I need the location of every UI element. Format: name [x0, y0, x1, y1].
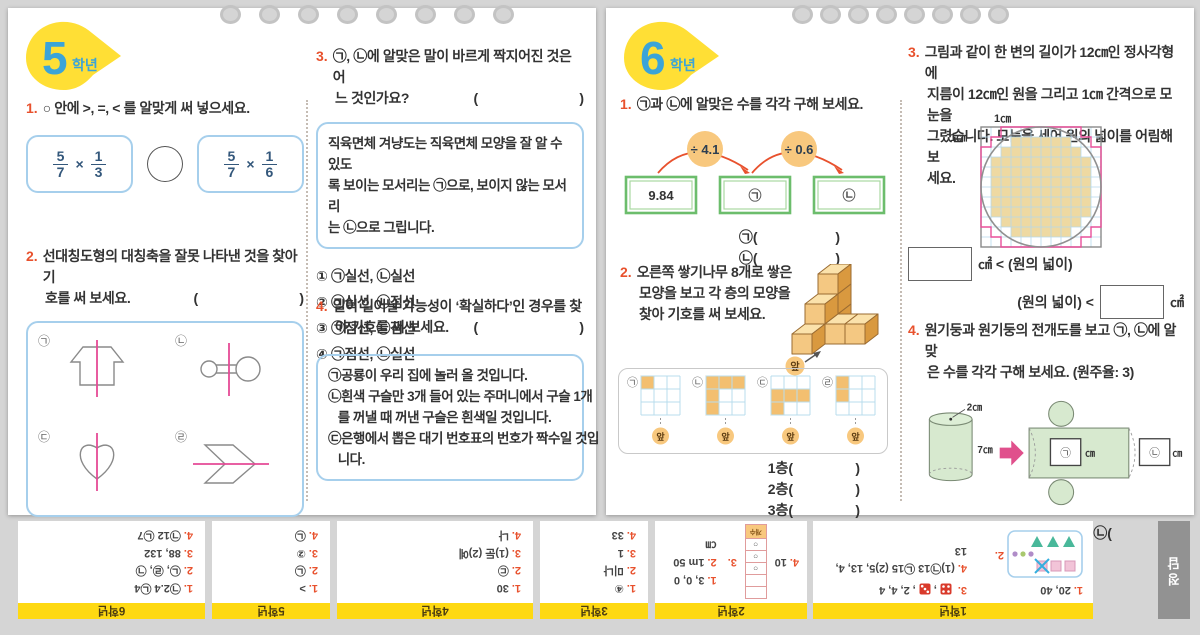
table-cell	[746, 586, 766, 598]
g6-question-4: 4. 원기둥과 원기둥의 전개도를 보고 ㉠, ㉡에 알맞 은 수를 각각 구해…	[908, 320, 1184, 544]
grid-label: ㉠	[627, 376, 638, 389]
die-icon	[919, 583, 931, 595]
unit-label: ㎝	[1172, 449, 1182, 460]
binder-ring-icon	[932, 5, 953, 24]
question-text: ㉠과 ㉡에 알맞은 수를 각각 구해 보세요.	[637, 94, 863, 115]
statement: 니다.	[328, 449, 572, 470]
binder-ring-icon	[220, 5, 241, 24]
statement: ㉠공룡이 우리 집에 놀러 올 것입니다.	[328, 365, 572, 386]
answer-mini-table: ○○○개수	[745, 524, 767, 599]
g5-q4-choices-box: ㉠공룡이 우리 집에 놀러 올 것입니다. ㉡흰색 구슬만 3개 들어 있는 주…	[316, 354, 584, 481]
answer-section-grade3: 3학년 1.④ 2.미나 3.1 4.33	[540, 521, 648, 619]
grade-tab: 3학년	[540, 603, 648, 619]
answer-section-grade5: 5학년 1.> 2.㉡ 3.② 4.㉡	[212, 521, 330, 619]
cube-stack-figure: 앞	[778, 264, 896, 378]
denominator: 3	[95, 164, 103, 180]
question-number: 4.	[908, 320, 920, 362]
question-text: 느 것인가요?	[335, 88, 409, 109]
answer-blank-layer3: 3층( )	[750, 500, 860, 521]
svg-text:앞: 앞	[656, 431, 665, 442]
circle-grid-figure	[980, 126, 1102, 248]
answer-box-b-label: ㉡	[1149, 448, 1160, 460]
column-divider	[900, 100, 902, 501]
answer-lines: 1.㉠2.4 ㉡4 2.㉡, ㉣, ㉠ 3.88, 132 4.㉠12 ㉡7	[18, 521, 205, 603]
table-cell	[746, 574, 766, 586]
fraction-box-left: 57 × 13	[26, 135, 133, 193]
binder-ring-icon	[415, 5, 436, 24]
binder-ring-icon	[792, 5, 813, 24]
statement: ㉡흰색 구슬만 3개 들어 있는 주머니에서 구슬 1개	[328, 386, 572, 407]
dumbbell-shape-figure	[195, 339, 269, 399]
question-text: 호를 써 보세요.	[45, 288, 130, 309]
binder-ring-icon	[376, 5, 397, 24]
answer-section-grade1: 1학년 1.20, 40	[813, 521, 1093, 619]
shape-cell-c: ㉢	[28, 419, 165, 515]
denominator: 7	[57, 164, 65, 180]
question-number: 3.	[316, 46, 328, 88]
grade-badge: 6 학년	[620, 18, 726, 96]
shape-cell-a: ㉠	[28, 323, 165, 419]
numerator: 1	[262, 149, 278, 165]
question-text: 선대칭도형의 대칭축을 잘못 나타낸 것을 찾아 기	[43, 246, 304, 288]
question-number: 2.	[620, 262, 632, 283]
binder-ring-icon	[960, 5, 981, 24]
question-text: 모양을 보고 각 층의 모양을	[639, 283, 790, 304]
answer-blank: ( )	[194, 288, 304, 309]
answer-blank-layer1: 1층( )	[750, 458, 860, 479]
heart-shape-figure	[60, 431, 134, 493]
fraction-box-right: 57 × 16	[197, 135, 304, 193]
svg-text:앞: 앞	[721, 431, 730, 442]
answer-section-grade2: 2학년 4.10 ○○○개수 3. 1.3, 0, 0 2.1m 50㎝	[655, 521, 807, 619]
binder-ring-icon	[259, 5, 280, 24]
compare-text-lower: ㎠ < (원의 넓이)	[978, 254, 1073, 275]
table-cell: ○	[746, 538, 766, 550]
unit-label: ㎝	[1085, 449, 1095, 460]
g5-q3-hint-box: 직육면체 겨냥도는 직육면체 모양을 잘 알 수 있도 록 보이는 모서리는 ㉠…	[316, 122, 584, 249]
g5-question-1: 1. ○ 안에 >, =, < 를 알맞게 써 넣으세요. 57 × 13 57…	[26, 98, 304, 193]
layer-options-box: ㉠ 앞 ㉡ 앞 ㉢	[618, 368, 888, 454]
numerator: 5	[53, 149, 69, 165]
cylinder-net-figure: 2㎝ 7㎝ ㉠ ㎝ ㉡ ㎝	[908, 391, 1184, 515]
shape-label: ㉡	[175, 331, 187, 352]
hint-text: 직육면체 겨냥도는 직육면체 모양을 잘 알 수 있도	[328, 133, 572, 175]
shape-cell-d: ㉣	[165, 419, 302, 515]
table-cell: ○	[746, 562, 766, 574]
grade-tab: 6학년	[18, 603, 205, 619]
question-text: 일이 일어날 가능성이 ‘확실하다’인 경우를 찾	[333, 296, 582, 317]
grid-label: ㉡	[692, 376, 703, 389]
arrow-shape-figure	[60, 339, 134, 399]
answer-lines: 1.30 2.㉢ 3.(1)둔 (2)예 4.나	[337, 521, 533, 603]
answers-tab-label: 정답	[1165, 554, 1184, 586]
binder-ring-icon	[988, 5, 1009, 24]
hint-text: 록 보이는 모서리는 ㉠으로, 보이지 않는 모서리	[328, 175, 572, 217]
operator-label: ÷ 0.6	[785, 142, 814, 157]
table-cell: ○	[746, 550, 766, 562]
binder-ring-icon	[876, 5, 897, 24]
times-sign: ×	[75, 154, 83, 175]
g6-question-1: 1. ㉠과 ㉡에 알맞은 수를 각각 구해 보세요. ÷ 4.1 ÷ 0.6 9…	[620, 94, 896, 269]
denominator: 7	[228, 164, 236, 180]
denominator: 6	[266, 164, 274, 180]
height-label: 7㎝	[977, 445, 992, 456]
question-number: 3.	[908, 42, 920, 84]
binder-ring-icon	[493, 5, 514, 24]
times-sign: ×	[246, 154, 254, 175]
question-text: 원기둥과 원기둥의 전개도를 보고 ㉠, ㉡에 알맞	[925, 320, 1184, 362]
grade-suffix: 학년	[72, 57, 98, 73]
layer-grids-figure: ㉠ 앞 ㉡ 앞 ㉢	[621, 370, 883, 450]
answer-input-box	[908, 247, 972, 281]
binder-ring-icon	[904, 5, 925, 24]
binder-ring-icon	[454, 5, 475, 24]
svg-text:앞: 앞	[786, 431, 795, 442]
grade-tab: 1학년	[813, 603, 1093, 619]
cm-label-left: 1㎝	[950, 128, 967, 149]
hint-text: 는 ㉡으로 그립니다.	[328, 217, 572, 238]
compare-text-upper: (원의 넓이) <	[1017, 292, 1094, 313]
shape-label: ㉠	[38, 331, 50, 352]
question-number: 1.	[620, 94, 632, 115]
question-number: 4.	[316, 296, 328, 317]
binder-ring-icon	[848, 5, 869, 24]
answer-lines: 1.> 2.㉡ 3.② 4.㉡	[212, 521, 330, 603]
binder-ring-icon	[820, 5, 841, 24]
grid-label: ㉢	[757, 376, 768, 389]
page-grade5: 5 학년 1. ○ 안에 >, =, < 를 알맞게 써 넣으세요. 57 × …	[8, 8, 596, 515]
mid-placeholder: ㉠	[748, 188, 761, 203]
operator-label: ÷ 4.1	[691, 142, 720, 157]
transform-arrow-icon	[1000, 441, 1024, 466]
answer-blank-layer2: 2층( )	[750, 479, 860, 500]
grade-tab: 5학년	[212, 603, 330, 619]
statement: 를 꺼낼 때 꺼낸 구슬은 흰색일 것입니다.	[328, 407, 572, 428]
question-text: 그림과 같이 한 변의 길이가 12㎝인 정사각형에	[925, 42, 1184, 84]
table-header: 개수	[746, 525, 766, 538]
g6-question-3: 3. 그림과 같이 한 변의 길이가 12㎝인 정사각형에 지름이 12㎝인 원…	[908, 42, 1184, 322]
shape-label: ㉢	[38, 427, 50, 448]
answer-blank: ㉠( )	[620, 227, 840, 248]
question-text: 찾아 기호를 써 보세요.	[639, 304, 765, 325]
g5-question-4: 4. 일이 일어날 가능성이 ‘확실하다’인 경우를 찾 아 기호를 써 보세요…	[316, 296, 584, 481]
answer-blank: ( )	[474, 88, 584, 109]
start-value: 9.84	[648, 188, 674, 203]
g6-question-2: 2. 오른쪽 쌓기나무 8개로 쌓은 모양을 보고 각 층의 모양을 찾아 기호…	[620, 262, 896, 514]
question-text: 오른쪽 쌓기나무 8개로 쌓은	[637, 262, 792, 283]
question-text: ○ 안에 >, =, < 를 알맞게 써 넣으세요.	[43, 98, 250, 119]
net-top-circle	[1049, 401, 1074, 426]
svg-text:앞: 앞	[851, 431, 860, 442]
question-number: 2.	[26, 246, 38, 288]
chevron-shape-figure	[191, 435, 271, 493]
question-text: 지름이 12㎝인 원을 그리고 1㎝ 간격으로 모눈을	[927, 84, 1184, 126]
end-placeholder: ㉡	[842, 188, 855, 203]
grade-suffix: 학년	[670, 57, 696, 73]
division-chain-figure: ÷ 4.1 ÷ 0.6 9.84 ㉠ ㉡	[620, 121, 890, 221]
g5-question-2: 2. 선대칭도형의 대칭축을 잘못 나타낸 것을 찾아 기 호를 써 보세요. …	[26, 246, 304, 517]
net-bottom-circle	[1049, 480, 1074, 505]
g5-q1-figure: 57 × 13 57 × 16	[26, 135, 304, 193]
question-text: 은 수를 각각 구해 보세요. (원주율: 3)	[927, 362, 1134, 383]
grade-badge: 5 학년	[22, 18, 128, 96]
radius-label: 2㎝	[967, 402, 982, 413]
workbook-spread: 5 학년 1. ○ 안에 >, =, < 를 알맞게 써 넣으세요. 57 × …	[0, 0, 1200, 635]
grade-number: 6	[640, 32, 666, 84]
answers-side-tab: 정답	[1158, 521, 1190, 619]
shape-label: ㉣	[175, 427, 187, 448]
answer-input-box	[1100, 285, 1164, 319]
answer-lines: 1.④ 2.미나 3.1 4.33	[540, 521, 648, 603]
grade-number: 5	[42, 32, 68, 84]
shapes-figure	[1007, 531, 1083, 579]
answer-blank: ( )	[474, 317, 584, 338]
shape-cell-b: ㉡	[165, 323, 302, 419]
grid-label: ㉣	[822, 376, 833, 389]
statement: ㉢은행에서 뽑은 대기 번호표의 번호가 짝수일 것입	[328, 428, 572, 449]
answer-section-grade4: 4학년 1.30 2.㉢ 3.(1)둔 (2)예 4.나	[337, 521, 533, 619]
binder-ring-icon	[298, 5, 319, 24]
answer-box-a-label: ㉠	[1060, 448, 1071, 460]
grade-tab: 4학년	[337, 603, 533, 619]
question-text: 세요.	[927, 168, 955, 189]
grade-tab: 2학년	[655, 603, 807, 619]
question-text: ㉠, ㉡에 알맞은 말이 바르게 짝지어진 것은 어	[333, 46, 584, 88]
numerator: 1	[91, 149, 107, 165]
page-grade6: 6 학년 1. ㉠과 ㉡에 알맞은 수를 각각 구해 보세요. ÷ 4.1 ÷ …	[606, 8, 1194, 515]
question-number: 1.	[26, 98, 38, 119]
question-text: 아 기호를 써 보세요.	[335, 317, 449, 338]
answer-section-grade6: 6학년 1.㉠2.4 ㉡4 2.㉡, ㉣, ㉠ 3.88, 132 4.㉠12 …	[18, 521, 205, 619]
symmetry-figure-box: ㉠ ㉡ ㉢	[26, 321, 304, 517]
unit-label: ㎠	[1170, 292, 1184, 313]
comparison-answer-circle	[147, 146, 183, 182]
binder-ring-icon	[337, 5, 358, 24]
numerator: 5	[224, 149, 240, 165]
option-1: ① ㉠실선, ㉡실선	[316, 263, 584, 289]
column-divider	[306, 100, 308, 501]
die-icon	[940, 583, 952, 595]
